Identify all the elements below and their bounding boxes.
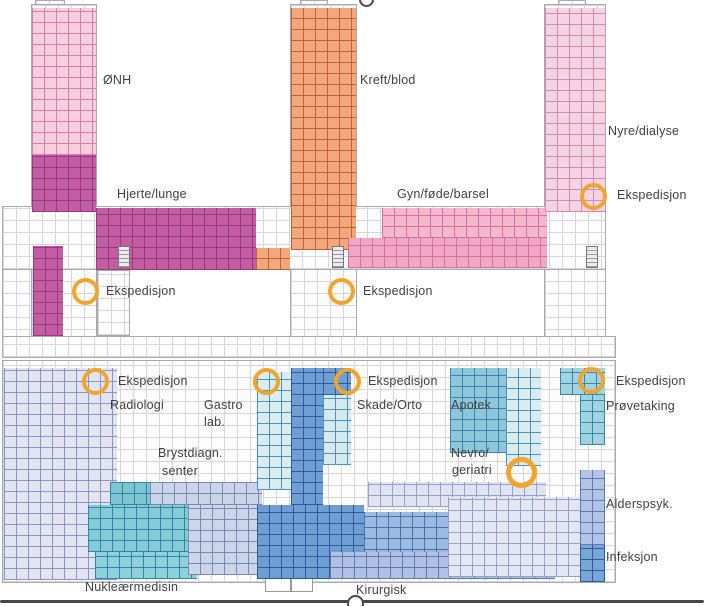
zone-kreft-blod xyxy=(291,8,356,250)
zone-kreft-blod-annex xyxy=(256,248,290,270)
label-ekspedisjon: Ekspedisjon xyxy=(106,284,176,299)
hospital-floor-plan-map: ØNH Kreft/blod Nyre/dialyse Ekspedisjon … xyxy=(0,0,721,606)
zone-onh xyxy=(32,8,96,155)
zone-gyn-fode-barsel xyxy=(348,238,547,268)
expedition-marker-skade xyxy=(334,368,361,395)
label-ekspedisjon: Ekspedisjon xyxy=(363,284,433,299)
elevator-icon xyxy=(332,246,344,268)
label-brystdiagn-senter: senter xyxy=(162,464,198,479)
zone-nevro-geriatri xyxy=(448,497,583,577)
upper-left-connector xyxy=(97,270,130,336)
label-gastro-lab: lab. xyxy=(204,415,225,430)
expedition-marker-center xyxy=(328,278,355,305)
label-onh: ØNH xyxy=(103,73,131,88)
label-skade-orto: Skade/Orto xyxy=(357,398,422,413)
label-infeksjon: Infeksjon xyxy=(606,550,658,565)
label-radiologi: Radiologi xyxy=(110,398,164,413)
label-apotek: Apotek xyxy=(451,398,491,413)
label-ekspedisjon: Ekspedisjon xyxy=(118,374,188,389)
expedition-marker-radiologi xyxy=(82,368,109,395)
label-nuklearmedisin: Nukleærmedisin xyxy=(85,580,178,595)
label-hjerte-lunge: Hjerte/lunge xyxy=(117,187,187,202)
upper-bottom-strip xyxy=(2,336,616,358)
zone-hjerte-lunge-north xyxy=(32,155,96,212)
zone-infeksjon xyxy=(580,545,605,582)
zone-brystdiagn-band xyxy=(150,482,262,505)
label-ekspedisjon: Ekspedisjon xyxy=(616,374,686,389)
label-nevro-geriatri: geriatri xyxy=(452,463,492,478)
label-nevro: Nevro/ xyxy=(451,446,489,461)
expedition-marker-nyre xyxy=(580,183,607,210)
zone-gyn-fode-barsel-north xyxy=(382,208,547,238)
elevator-icon xyxy=(586,246,598,268)
elevator-icon xyxy=(118,246,130,268)
expedition-marker-nevro xyxy=(506,457,537,488)
clipped-circle-bottom xyxy=(347,595,364,606)
label-kreft-blod: Kreft/blod xyxy=(360,73,416,88)
zone-alderspsyk xyxy=(580,470,605,545)
label-gastro: Gastro xyxy=(204,398,243,413)
expedition-marker-gastro xyxy=(253,368,280,395)
label-brystdiagn: Brystdiagn. xyxy=(158,446,223,461)
label-gyn-fode-barsel: Gyn/føde/barsel xyxy=(397,187,489,202)
label-alderspsyk: Alderspsyk. xyxy=(606,497,673,512)
zone-nuklearmedisin-south xyxy=(95,552,197,579)
zone-nuklearmedisin-band xyxy=(110,482,150,505)
zone-hjerte-lunge-south xyxy=(33,246,63,336)
label-ekspedisjon: Ekspedisjon xyxy=(617,188,687,203)
expedition-marker-hjerte xyxy=(72,278,99,305)
expedition-marker-provetaking xyxy=(578,367,605,394)
label-kirurgisk: Kirurgisk xyxy=(356,583,406,598)
zone-nyre-dialyse xyxy=(545,8,605,212)
zone-apotek xyxy=(506,368,541,466)
zone-nuklearmedisin xyxy=(88,505,188,552)
label-ekspedisjon: Ekspedisjon xyxy=(368,374,438,389)
zone-provetaking xyxy=(580,395,605,445)
clipped-circle-top xyxy=(359,0,374,7)
zone-gastro-east xyxy=(323,395,351,465)
label-provetaking: Prøvetaking xyxy=(606,399,675,414)
zone-skade-orto xyxy=(291,368,323,505)
label-nyre-dialyse: Nyre/dialyse xyxy=(608,124,679,139)
